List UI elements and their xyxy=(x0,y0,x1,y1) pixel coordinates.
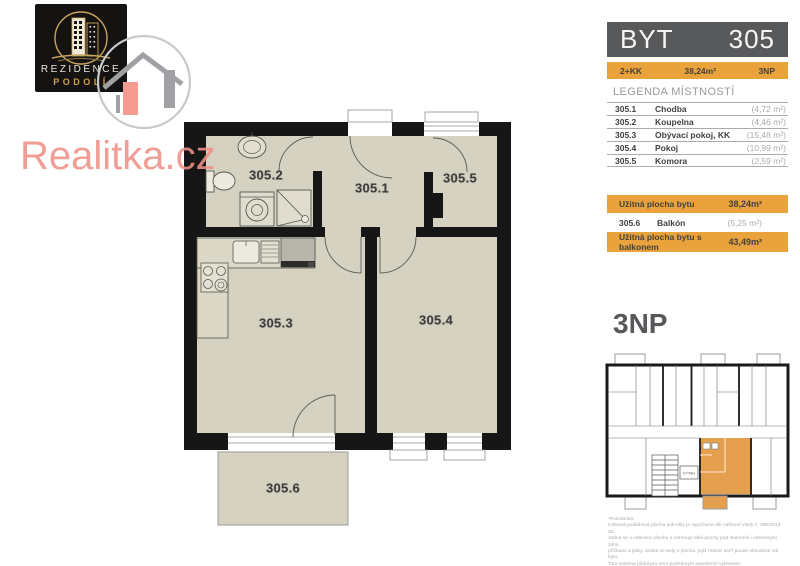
legend-table: 305.1 Chodba (4,72 m²) 305.2 Koupelna (4… xyxy=(607,102,788,167)
unit-subheader-bar: 2+KK 38,24m² 3NP xyxy=(607,62,788,79)
disclaimer-text: *Poznámka: Celková podlahová plocha jedn… xyxy=(608,517,788,566)
legend-row: 305.1 Chodba (4,72 m²) xyxy=(607,102,788,115)
mini-elevator-label: VÝTAH xyxy=(683,472,696,476)
legend-room-name: Obývací pokoj, KK xyxy=(655,130,747,140)
room-label-305-6: 305.6 xyxy=(266,481,300,496)
unit-floor: 3NP xyxy=(758,66,775,76)
mini-stairs xyxy=(652,455,678,496)
summary-balcony-row: 305.6 Balkón (5,25 m²) xyxy=(607,213,788,232)
legend-room-number: 305.1 xyxy=(607,104,655,114)
legend-room-name: Pokoj xyxy=(655,143,747,153)
unit-header-bar: BYT 305 xyxy=(607,22,788,57)
summary-usable-bar: Užitná plocha bytu 38,24m² xyxy=(607,195,788,213)
room-label-305-3: 305.3 xyxy=(259,316,293,331)
room-label-305-2: 305.2 xyxy=(249,168,283,183)
mini-highlighted-balcony xyxy=(703,496,727,509)
balcony-number: 305.6 xyxy=(619,218,657,228)
legend-room-number: 305.3 xyxy=(607,130,655,140)
disclaimer-line: příčkami a jádry. Jedná se tedy o plochu… xyxy=(608,549,788,562)
summary-total-value: 43,49m² xyxy=(728,237,762,247)
disclaimer-line: Toto schéma půdorysu není podrobným stav… xyxy=(608,562,788,566)
legend-room-area: (15,48 m²) xyxy=(747,130,788,140)
legend-room-name: Komora xyxy=(655,156,752,166)
summary-total-label: Užitná plocha bytu s balkonem xyxy=(619,232,728,252)
unit-header-number: 305 xyxy=(729,24,775,55)
mini-elevator: VÝTAH xyxy=(680,466,698,479)
summary-total-bar: Užitná plocha bytu s balkonem 43,49m² xyxy=(607,232,788,252)
room-label-305-5: 305.5 xyxy=(443,171,477,186)
realitka-watermark-text: Realitka.cz xyxy=(20,134,216,179)
legend-room-area: (4,72 m²) xyxy=(752,104,788,114)
balcony-name: Balkón xyxy=(657,218,728,228)
legend-row: 305.2 Koupelna (4,46 m²) xyxy=(607,115,788,128)
unit-header-byt: BYT xyxy=(620,24,674,55)
disclaimer-line: Celková podlahová plocha jednotky je vyp… xyxy=(608,523,788,536)
legend-row: 305.4 Pokoj (10,99 m²) xyxy=(607,141,788,154)
summary-usable-label: Užitná plocha bytu xyxy=(619,199,695,209)
room-label-305-4: 305.4 xyxy=(419,313,453,328)
legend-room-name: Koupelna xyxy=(655,117,752,127)
mini-floorplan: VÝTAH xyxy=(600,352,795,514)
legend-room-area: (2,59 m²) xyxy=(752,156,788,166)
legend-row: 305.3 Obývací pokoj, KK (15,48 m²) xyxy=(607,128,788,141)
flyer-page: REZIDENCE PODOLÍ xyxy=(0,0,800,566)
legend-room-area: (10,99 m²) xyxy=(747,143,788,153)
legend-room-number: 305.2 xyxy=(607,117,655,127)
balcony-area: (5,25 m²) xyxy=(728,218,762,228)
legend-room-name: Chodba xyxy=(655,104,752,114)
disclaimer-line: Jedná se o celkovou plochu a zahrnuje ta… xyxy=(608,536,788,549)
floor-title: 3NP xyxy=(613,308,667,340)
unit-area: 38,24m² xyxy=(684,66,716,76)
legend-room-number: 305.5 xyxy=(607,156,655,166)
legend-room-area: (4,46 m²) xyxy=(752,117,788,127)
realitka-house-icon xyxy=(96,33,196,133)
room-label-305-1: 305.1 xyxy=(355,181,389,196)
legend-row: 305.5 Komora (2,59 m²) xyxy=(607,154,788,167)
legend-room-number: 305.4 xyxy=(607,143,655,153)
legend-title: LEGENDA MÍSTNOSTÍ xyxy=(613,86,735,98)
unit-layout: 2+KK xyxy=(620,66,642,76)
summary-usable-value: 38,24m² xyxy=(728,199,762,209)
